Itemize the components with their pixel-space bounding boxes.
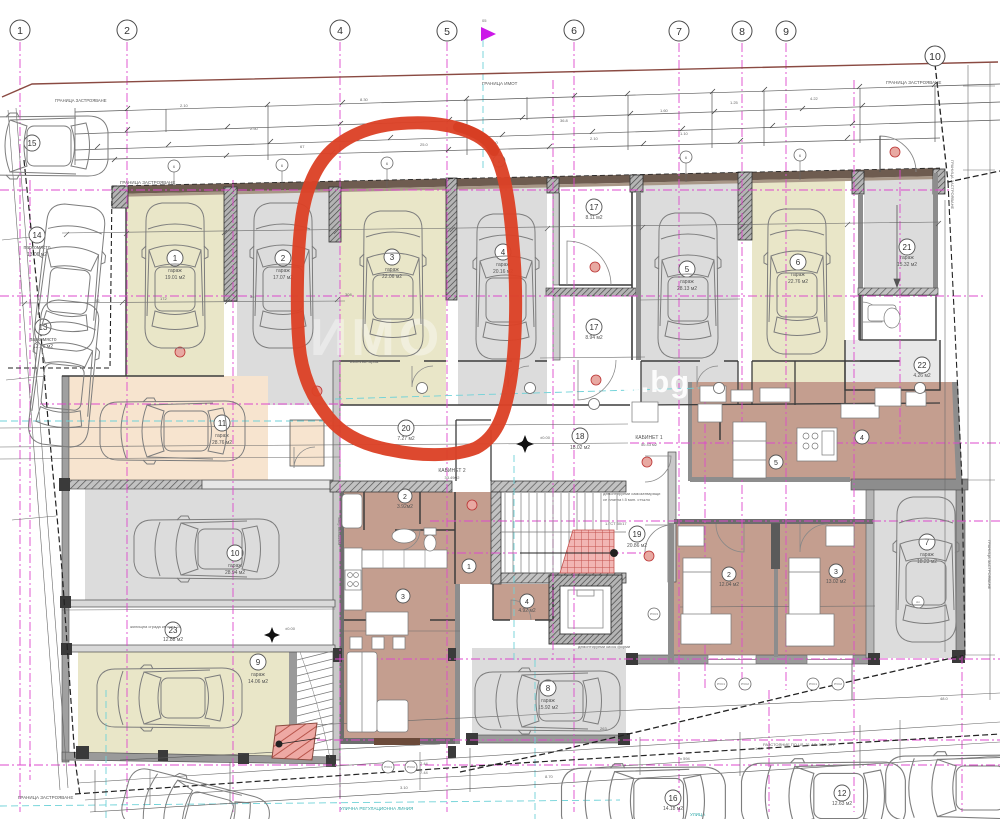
svg-text:ГРАНИЦА ЗАСТРОЯВАНЕ: ГРАНИЦА ЗАСТРОЯВАНЕ [55,98,107,103]
svg-text:ГРАНИЦА ЗАСТРОЯВАНЕ: ГРАНИЦА ЗАСТРОЯВАНЕ [950,160,955,210]
svg-text:PVC2: PVC2 [407,765,415,769]
svg-text:4: 4 [337,25,343,37]
svg-text:10: 10 [231,549,240,558]
svg-text:7.44: 7.44 [420,761,429,766]
svg-text:20: 20 [402,424,411,433]
svg-text:50.43 м2: 50.43 м2 [641,442,658,447]
svg-text:4: 4 [525,599,529,606]
svg-text:18: 18 [576,432,585,441]
svg-text:28.13 м2: 28.13 м2 [677,286,697,292]
svg-text:7.27 м2: 7.27 м2 [397,436,415,442]
svg-text:гараж: гараж [168,268,182,274]
svg-text:2.10: 2.10 [590,136,599,141]
svg-text:x 594: x 594 [680,756,691,761]
svg-text:PVC2: PVC2 [741,682,749,686]
svg-text:20.86 м2: 20.86 м2 [627,543,647,549]
svg-text:22.76 м2: 22.76 м2 [788,279,808,285]
svg-text:PVC3: PVC3 [650,612,658,616]
svg-text:КАБИНЕТ 1: КАБИНЕТ 1 [635,435,663,441]
svg-text:15.92 м2: 15.92 м2 [538,705,558,711]
svg-text:±0.00: ±0.00 [285,626,296,631]
svg-text:гараж: гараж [680,279,694,285]
svg-text:67: 67 [300,144,305,149]
svg-text:УЛИЧНА РЕГУЛАЦИОННА ЛИНИЯ: УЛИЧНА РЕГУЛАЦИОННА ЛИНИЯ [340,806,413,811]
svg-text:17.07 м2: 17.07 м2 [273,275,293,281]
svg-text:1.25: 1.25 [730,100,739,105]
svg-text:9: 9 [256,658,261,667]
svg-text:17: 17 [590,323,599,332]
svg-text:1.50: 1.50 [755,746,764,751]
svg-text:1.60: 1.60 [660,108,669,113]
svg-text:4.26 м2: 4.26 м2 [913,373,931,379]
svg-text:28.94 м2: 28.94 м2 [225,570,245,576]
svg-text:2: 2 [727,572,731,579]
svg-text:1.10: 1.10 [680,131,689,136]
svg-text:гараж: гараж [276,268,290,274]
svg-text:8.94 м2: 8.94 м2 [585,335,603,341]
svg-text:3: 3 [390,253,395,262]
svg-text:КАБИНЕТ 2: КАБИНЕТ 2 [438,468,466,474]
svg-text:ГРАНИЦА ЗАСТРОЯВАНЕ: ГРАНИЦА ЗАСТРОЯВАНЕ [120,180,175,185]
svg-text:8.30: 8.30 [360,97,369,102]
svg-text:15: 15 [28,139,37,148]
svg-text:10: 10 [929,51,941,63]
svg-text:1: 1 [17,25,23,37]
svg-text:05: 05 [482,18,487,23]
svg-text:2.50: 2.50 [250,126,259,131]
svg-text:кухненски бокс: кухненски бокс [336,517,341,545]
svg-text:25.0: 25.0 [420,142,429,147]
svg-text:12.63 м2: 12.63 м2 [832,801,852,807]
svg-text:1: 1 [173,254,178,263]
svg-text:33.49м2: 33.49м2 [445,475,461,480]
svg-text:3: 3 [401,594,405,601]
svg-text:12: 12 [838,789,847,798]
svg-text:7.44: 7.44 [420,770,429,775]
svg-text:19.01 м2: 19.01 м2 [165,275,185,281]
svg-text:8: 8 [546,684,551,693]
svg-text:1.ГСТ 30/17: 1.ГСТ 30/17 [605,521,627,526]
svg-text:гараж: гараж [900,255,914,261]
svg-text:4.22: 4.22 [810,96,819,101]
svg-text:демонтируеми киоск форми: демонтируеми киоск форми [578,644,630,649]
svg-text:РАЗСТОЯНИЕ ПО ЧЛ. 31 АЛ. 5ОТ З: РАЗСТОЯНИЕ ПО ЧЛ. 31 АЛ. 5ОТ ЗУТ [763,742,835,747]
svg-text:14.06 м2: 14.06 м2 [248,679,268,685]
svg-text:13.06 м2: 13.06 м2 [27,252,47,258]
svg-text:3.10: 3.10 [400,785,409,790]
svg-text:14.18 м2: 14.18 м2 [663,806,683,812]
svg-text:гараж: гараж [215,433,229,439]
svg-text:308: 308 [345,292,352,297]
svg-text:12.88 м2: 12.88 м2 [163,637,183,643]
svg-text:гараж: гараж [541,698,555,704]
svg-text:ГРАНИЦА ИМОТ: ГРАНИЦА ИМОТ [482,81,518,86]
svg-text:17: 17 [590,203,599,212]
svg-text:22: 22 [918,361,927,370]
svg-text:1: 1 [467,564,471,571]
svg-text:19: 19 [633,530,642,539]
svg-text:3: 3 [834,569,838,576]
svg-text:12.04 м2: 12.04 м2 [719,582,739,588]
svg-text:±0.00: ±0.00 [540,435,551,440]
svg-text:2: 2 [281,254,286,263]
svg-text:PVC1: PVC1 [717,682,725,686]
svg-text:21: 21 [903,243,912,252]
svg-text:13.02 м2: 13.02 м2 [826,579,846,585]
svg-text:гараж: гараж [920,552,934,558]
svg-text:172: 172 [160,296,167,301]
svg-text:демонтируеми самозатварящи: демонтируеми самозатварящи [603,491,660,496]
svg-text:28.76 м2: 28.76 м2 [212,440,232,446]
svg-text:18.23 м2: 18.23 м2 [917,559,937,565]
svg-text:жилищна сграда кв.зона 2а: жилищна сграда кв.зона 2а [130,624,182,629]
svg-text:7: 7 [676,26,682,38]
svg-text:4: 4 [860,435,864,442]
svg-text:Ал: Ал [916,600,920,604]
svg-text:18.02 м2: 18.02 м2 [570,445,590,451]
svg-text:2: 2 [124,25,130,37]
svg-text:6: 6 [571,25,577,37]
svg-text:паркомясто: паркомясто [30,337,57,343]
svg-text:8.70: 8.70 [545,774,554,779]
svg-text:14: 14 [33,231,42,240]
svg-text:PVC1: PVC1 [809,682,817,686]
svg-text:16: 16 [669,794,678,803]
svg-text:се платна t.5 мин. стъкло: се платна t.5 мин. стъкло [603,497,651,502]
svg-text:ГРАНИЦА ЗАСТРОЯВАНЕ: ГРАНИЦА ЗАСТРОЯВАНЕ [987,540,992,590]
svg-text:PVC2: PVC2 [834,682,842,686]
svg-text:PVC1: PVC1 [384,765,392,769]
svg-text:ГРАНИЦА ЗАСТРОЯВАНЕ: ГРАНИЦА ЗАСТРОЯВАНЕ [18,795,73,800]
svg-text:4.92 м2: 4.92 м2 [518,608,536,614]
svg-text:2.10: 2.10 [180,103,189,108]
svg-text:5: 5 [685,265,690,274]
svg-text:9: 9 [783,26,789,38]
svg-text:5: 5 [774,460,778,467]
svg-text:8.11 м2: 8.11 м2 [586,215,603,221]
svg-text:6: 6 [796,258,801,267]
svg-text:36.8: 36.8 [560,118,569,123]
svg-text:3.92м2: 3.92м2 [397,504,413,510]
svg-text:гараж: гараж [251,672,265,678]
svg-text:ʹa.bg: ʹa.bg [614,364,690,399]
svg-text:ГРАНИЦА ЗАСТРОЯВАНЕ: ГРАНИЦА ЗАСТРОЯВАНЕ [886,80,941,85]
svg-text:8: 8 [739,26,745,38]
svg-text:5: 5 [444,26,450,38]
svg-text:36: 36 [250,294,255,299]
svg-text:15.32 м2: 15.32 м2 [897,262,917,268]
svg-text:48.0: 48.0 [940,696,949,701]
svg-text:2: 2 [403,494,407,501]
